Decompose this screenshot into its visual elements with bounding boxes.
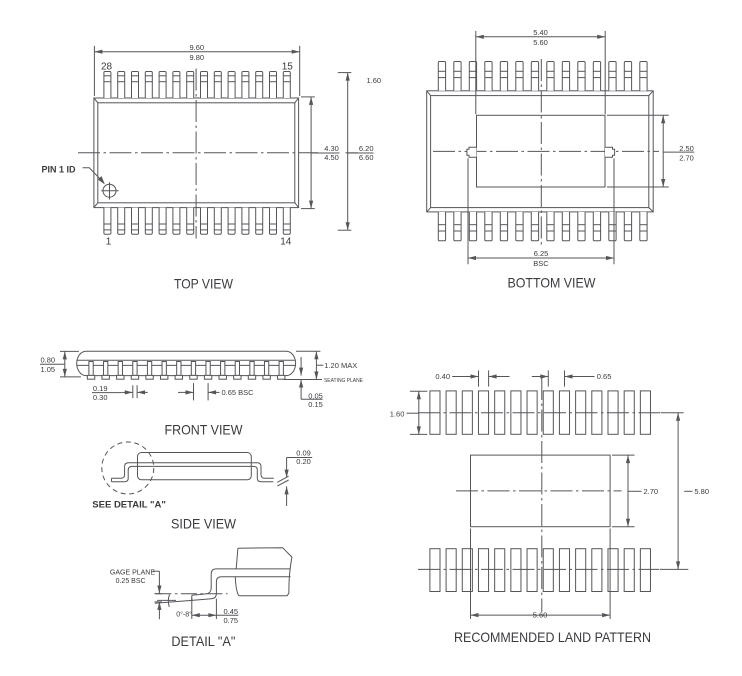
svg-text:DETAIL "A": DETAIL "A"	[171, 633, 235, 649]
svg-text:5.80: 5.80	[694, 487, 709, 496]
svg-text:FRONT VIEW: FRONT VIEW	[165, 421, 244, 437]
svg-text:2.50: 2.50	[679, 144, 694, 153]
svg-text:4.30: 4.30	[324, 144, 339, 153]
svg-text:0.15: 0.15	[308, 400, 323, 409]
svg-text:28: 28	[101, 61, 113, 72]
svg-text:14: 14	[280, 236, 292, 247]
svg-text:4.50: 4.50	[324, 153, 339, 162]
svg-text:5.60: 5.60	[533, 610, 548, 619]
svg-text:BOTTOM VIEW: BOTTOM VIEW	[508, 274, 597, 290]
svg-text:SEATING PLANE: SEATING PLANE	[324, 378, 363, 384]
svg-text:0.25 BSC: 0.25 BSC	[116, 578, 146, 585]
svg-text:1.20 MAX: 1.20 MAX	[324, 361, 357, 370]
svg-text:6.60: 6.60	[359, 153, 374, 162]
svg-text:0.65 BSC: 0.65 BSC	[222, 388, 255, 397]
svg-text:GAGE PLANE: GAGE PLANE	[110, 569, 155, 576]
svg-text:1.60: 1.60	[367, 76, 382, 85]
svg-text:RECOMMENDED LAND PATTERN: RECOMMENDED LAND PATTERN	[454, 629, 651, 645]
svg-text:TOP VIEW: TOP VIEW	[174, 275, 234, 291]
svg-text:0.45: 0.45	[223, 607, 238, 616]
svg-text:5.60: 5.60	[533, 38, 548, 47]
svg-text:0.19: 0.19	[93, 384, 108, 393]
svg-text:0°-8°: 0°-8°	[176, 611, 192, 619]
svg-text:0.30: 0.30	[93, 393, 108, 402]
svg-text:1.60: 1.60	[390, 409, 405, 418]
svg-text:6.25: 6.25	[534, 249, 549, 258]
svg-text:9.60: 9.60	[189, 43, 204, 52]
svg-text:0.75: 0.75	[223, 616, 238, 625]
svg-text:5.40: 5.40	[533, 28, 548, 37]
svg-text:PIN 1 ID: PIN 1 ID	[42, 165, 77, 175]
svg-text:2.70: 2.70	[644, 487, 659, 496]
svg-text:0.05: 0.05	[308, 391, 323, 400]
svg-text:0.65: 0.65	[597, 372, 612, 381]
svg-text:0.09: 0.09	[296, 448, 311, 457]
svg-text:0.80: 0.80	[40, 355, 55, 364]
svg-text:SIDE VIEW: SIDE VIEW	[171, 515, 237, 531]
svg-text:0.40: 0.40	[435, 372, 450, 381]
svg-text:2.70: 2.70	[679, 154, 694, 163]
svg-text:SEE DETAIL "A": SEE DETAIL "A"	[92, 500, 166, 511]
svg-text:6.20: 6.20	[359, 144, 374, 153]
svg-text:1: 1	[106, 236, 112, 247]
svg-text:0.20: 0.20	[296, 457, 311, 466]
svg-text:BSC: BSC	[533, 259, 549, 268]
svg-text:1.05: 1.05	[40, 365, 55, 374]
svg-text:15: 15	[282, 61, 294, 72]
svg-text:9.80: 9.80	[189, 53, 204, 62]
